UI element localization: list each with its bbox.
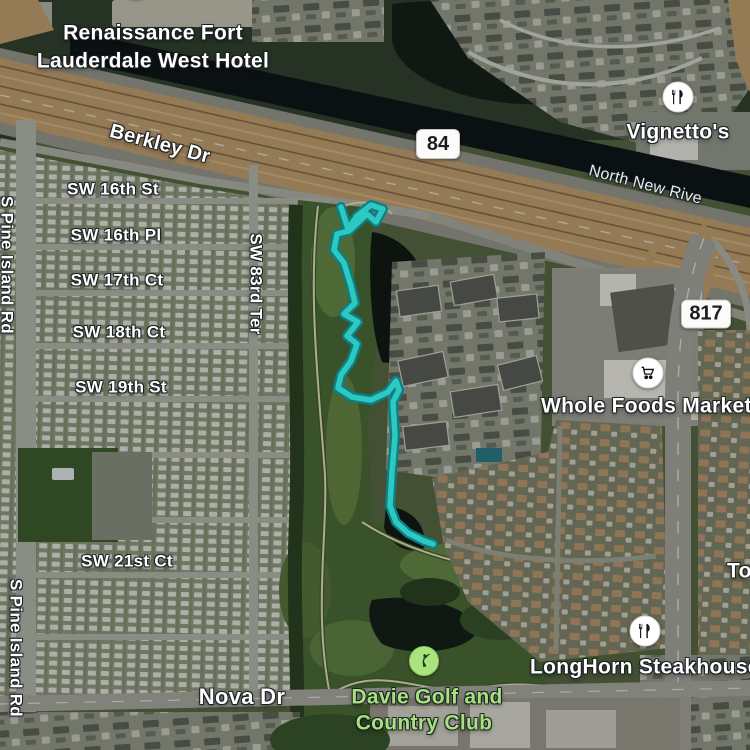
poi-label-golf-line1[interactable]: Davie Golf and — [351, 687, 502, 708]
road-label-sw-19th-st: SW 19th St — [75, 379, 167, 396]
poi-label-partial-to[interactable]: To — [727, 561, 750, 582]
road-label-sw-18th-ct: SW 18th Ct — [73, 324, 166, 341]
golfer-icon[interactable] — [409, 646, 439, 676]
restaurant-icon[interactable] — [663, 82, 694, 113]
road-label-pine-island-south: S Pine Island Rd — [8, 579, 25, 717]
road-label-pine-island-north: S Pine Island Rd — [0, 196, 16, 334]
grocery-cart-icon[interactable] — [633, 358, 664, 389]
route-shield-84: 84 — [416, 129, 460, 159]
road-label-sw-83rd-ter: SW 83rd Ter — [248, 233, 265, 334]
poi-label-hotel-line1[interactable]: Renaissance Fort — [63, 23, 243, 44]
road-label-sw-21st-ct: SW 21st Ct — [81, 553, 173, 570]
road-label-nova-dr: Nova Dr — [199, 686, 285, 708]
satellite-map[interactable]: Renaissance Fort Lauderdale West Hotel B… — [0, 0, 750, 750]
road-label-sw-17th-ct: SW 17th Ct — [71, 272, 164, 289]
poi-label-longhorn[interactable]: LongHorn Steakhouse — [530, 657, 750, 678]
poi-label-whole-foods[interactable]: Whole Foods Market — [541, 396, 750, 417]
road-label-sw-16th-pl: SW 16th Pl — [71, 227, 162, 244]
restaurant-icon[interactable] — [630, 616, 661, 647]
poi-label-vignettos[interactable]: Vignetto's — [626, 122, 729, 143]
road-label-sw-16th-st: SW 16th St — [67, 181, 159, 198]
route-shield-817: 817 — [681, 300, 731, 329]
poi-label-golf-line2[interactable]: Country Club — [356, 713, 493, 734]
poi-label-hotel-line2[interactable]: Lauderdale West Hotel — [37, 51, 269, 72]
